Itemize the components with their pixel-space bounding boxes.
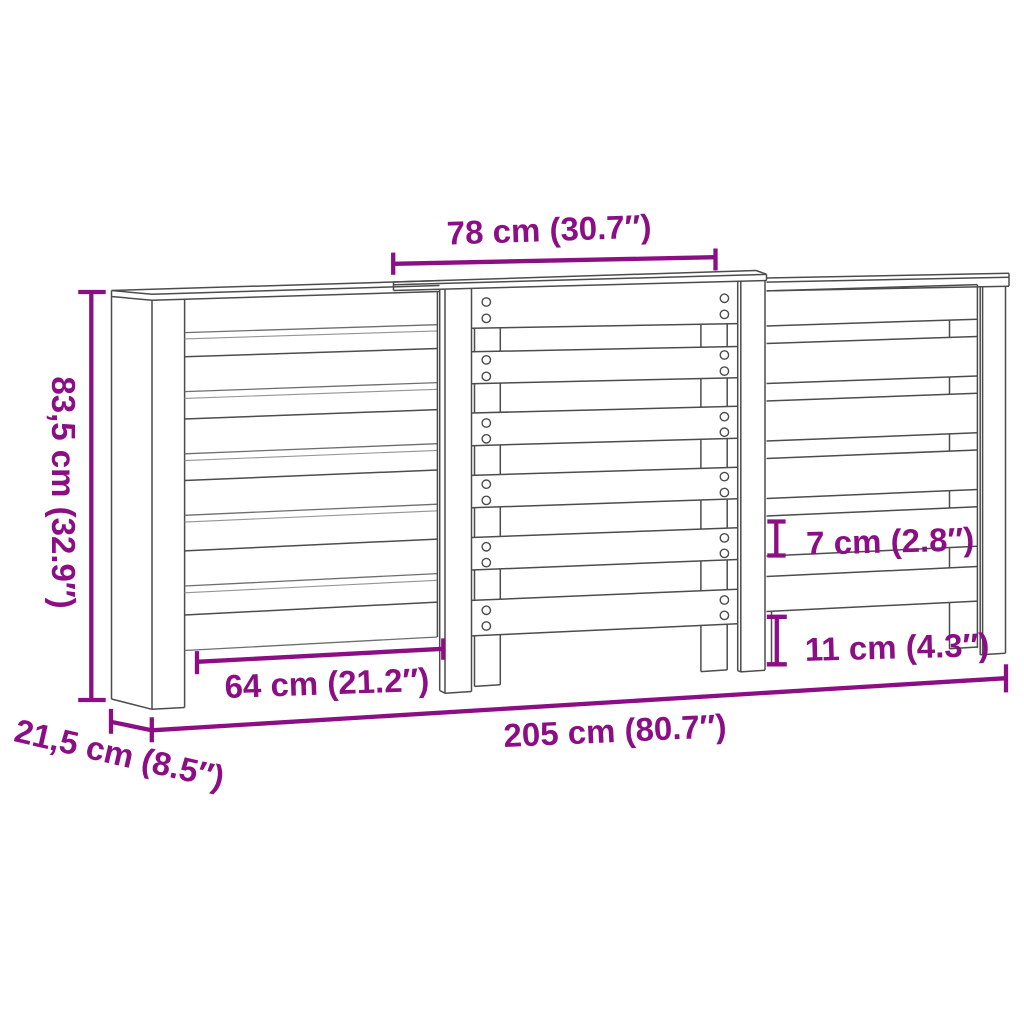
- svg-text:64 cm (21.2″): 64 cm (21.2″): [224, 661, 430, 705]
- svg-text:7 cm (2.8″): 7 cm (2.8″): [806, 520, 975, 561]
- svg-text:78 cm (30.7″): 78 cm (30.7″): [446, 207, 652, 251]
- svg-text:83,5 cm (32.9″): 83,5 cm (32.9″): [45, 376, 82, 608]
- svg-text:11 cm (4.3″): 11 cm (4.3″): [804, 626, 989, 668]
